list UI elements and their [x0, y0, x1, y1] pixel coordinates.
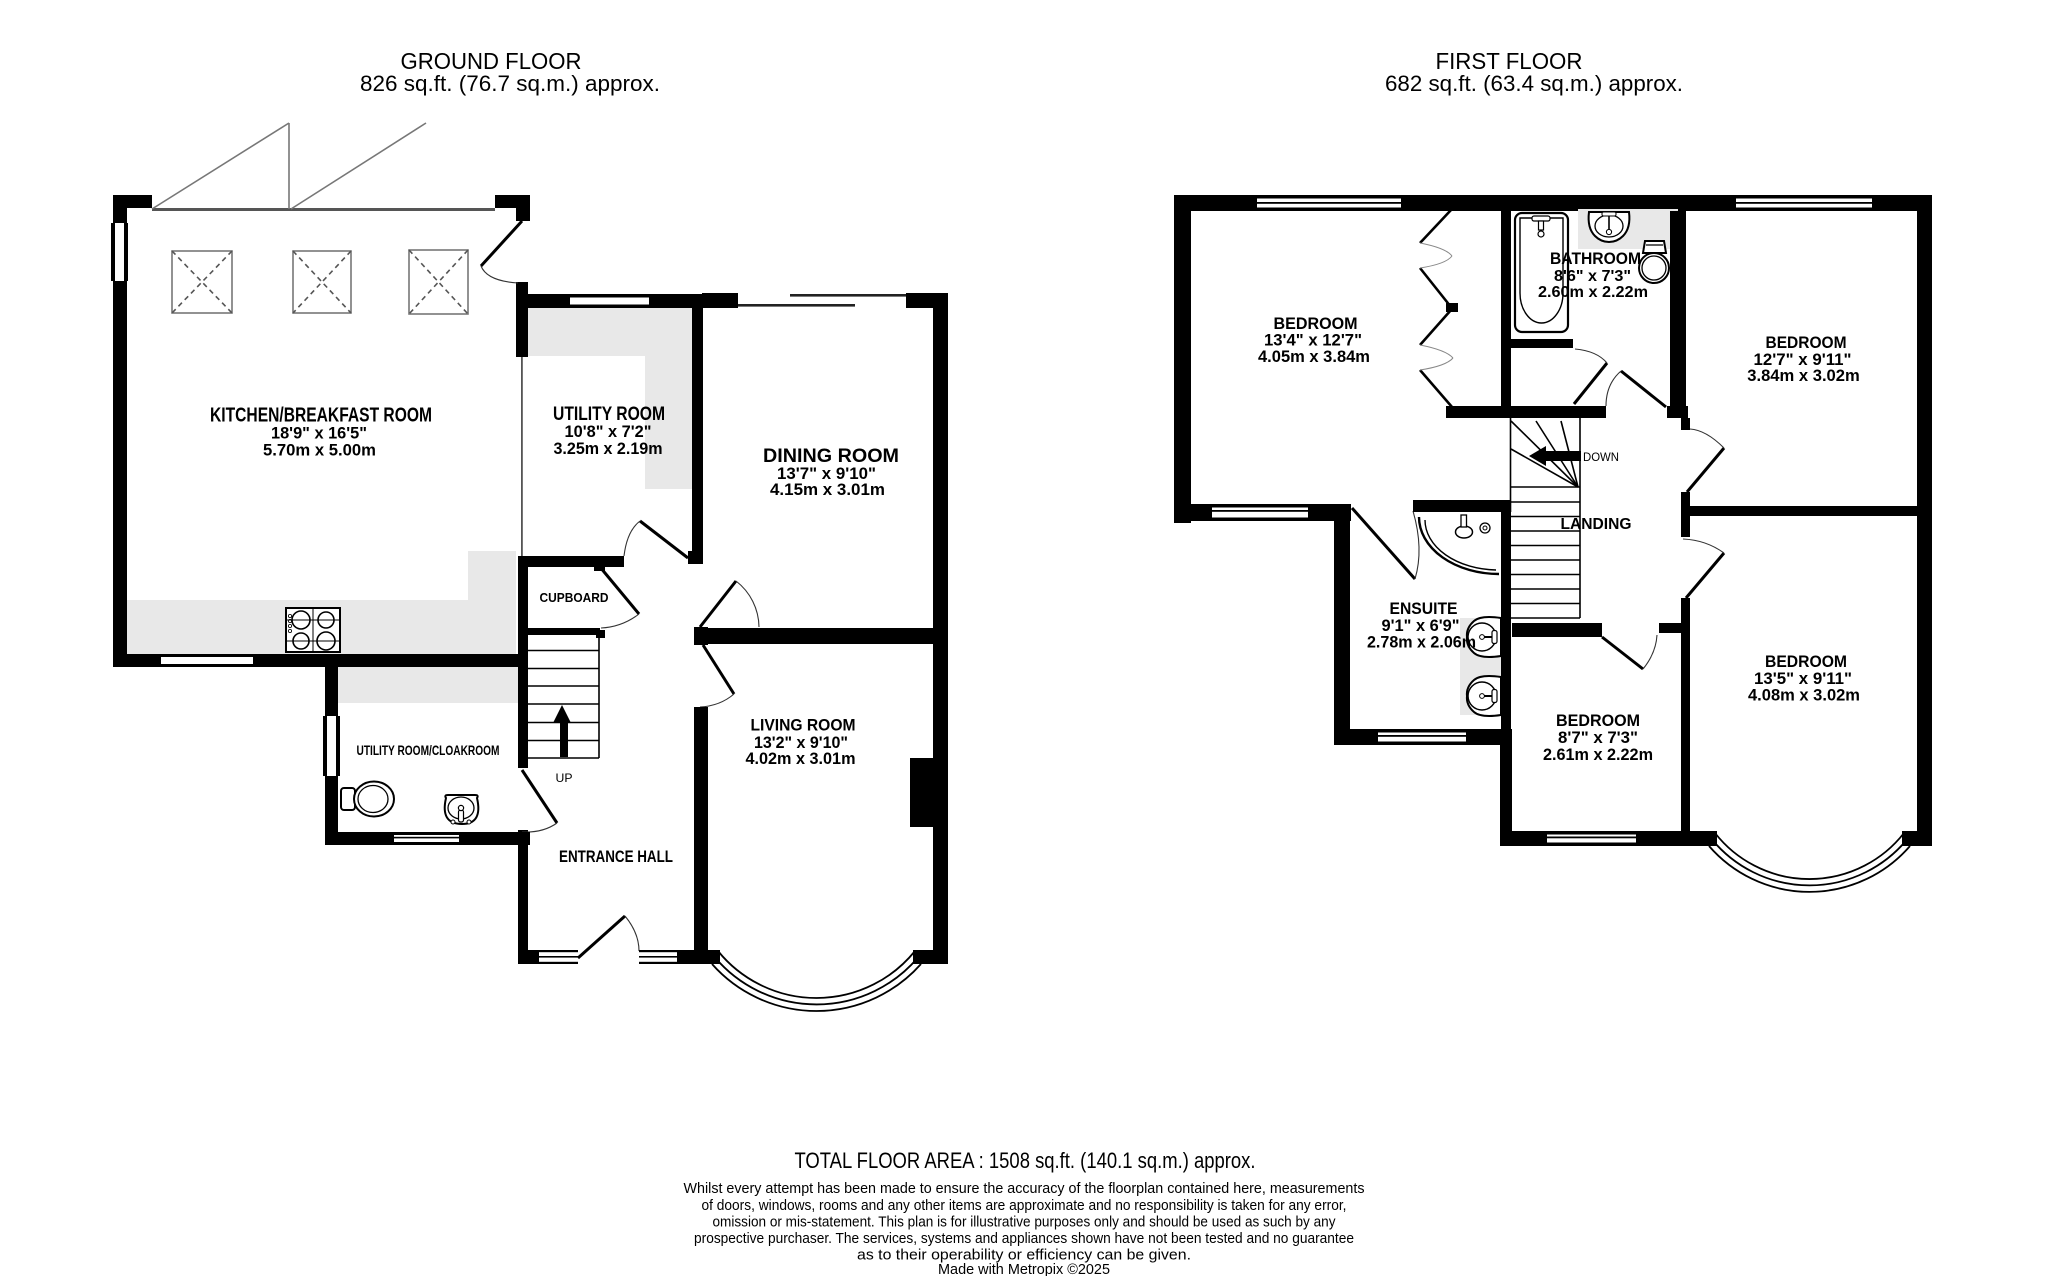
svg-text:BATHROOM: BATHROOM: [1550, 250, 1641, 268]
svg-text:826 sq.ft. (76.7 sq.m.) approx: 826 sq.ft. (76.7 sq.m.) approx.: [360, 71, 660, 96]
svg-text:UTILITY ROOM/CLOAKROOM: UTILITY ROOM/CLOAKROOM: [357, 742, 500, 758]
svg-text:4.08m x 3.02m: 4.08m x 3.02m: [1748, 687, 1860, 705]
svg-text:DINING ROOM: DINING ROOM: [763, 446, 899, 467]
svg-text:UP: UP: [556, 771, 573, 785]
svg-text:KITCHEN/BREAKFAST ROOM: KITCHEN/BREAKFAST ROOM: [210, 405, 432, 427]
svg-text:2.60m x 2.22m: 2.60m x 2.22m: [1538, 284, 1648, 301]
svg-text:BEDROOM: BEDROOM: [1274, 314, 1358, 333]
svg-text:3.25m x 2.19m: 3.25m x 2.19m: [554, 439, 663, 458]
svg-text:2.78m x 2.06m: 2.78m x 2.06m: [1367, 634, 1476, 652]
svg-text:4.05m x 3.84m: 4.05m x 3.84m: [1258, 348, 1370, 366]
svg-text:13'4" x 12'7": 13'4" x 12'7": [1264, 332, 1362, 350]
svg-text:LIVING ROOM: LIVING ROOM: [751, 716, 856, 735]
svg-text:5.70m x 5.00m: 5.70m x 5.00m: [263, 441, 376, 460]
svg-text:CUPBOARD: CUPBOARD: [540, 590, 609, 605]
svg-text:TOTAL FLOOR AREA : 1508 sq.ft.: TOTAL FLOOR AREA : 1508 sq.ft. (140.1 sq…: [795, 1148, 1256, 1173]
svg-text:Whilst every attempt has been: Whilst every attempt has been made to en…: [684, 1181, 1365, 1197]
svg-text:ENTRANCE HALL: ENTRANCE HALL: [559, 847, 673, 866]
svg-text:DOWN: DOWN: [1583, 450, 1619, 464]
svg-text:BEDROOM: BEDROOM: [1765, 652, 1847, 671]
svg-text:2.61m x 2.22m: 2.61m x 2.22m: [1543, 746, 1653, 764]
svg-text:prospective purchaser. The ser: prospective purchaser. The services, sys…: [694, 1231, 1354, 1247]
svg-text:3.84m x 3.02m: 3.84m x 3.02m: [1747, 367, 1860, 385]
svg-text:BEDROOM: BEDROOM: [1556, 711, 1640, 730]
svg-text:ENSUITE: ENSUITE: [1390, 599, 1458, 618]
svg-text:8'7" x 7'3": 8'7" x 7'3": [1558, 729, 1638, 747]
svg-text:Made with Metropix ©2025: Made with Metropix ©2025: [938, 1262, 1110, 1276]
svg-text:9'1" x 6'9": 9'1" x 6'9": [1382, 617, 1460, 635]
svg-text:BEDROOM: BEDROOM: [1766, 333, 1847, 352]
svg-text:4.15m x 3.01m: 4.15m x 3.01m: [770, 481, 885, 499]
svg-text:13'5" x 9'11": 13'5" x 9'11": [1754, 670, 1852, 688]
svg-text:4.02m x 3.01m: 4.02m x 3.01m: [746, 750, 856, 768]
svg-text:8'6" x 7'3": 8'6" x 7'3": [1554, 268, 1631, 285]
svg-text:LANDING: LANDING: [1561, 516, 1632, 533]
svg-text:of doors, windows, rooms and a: of doors, windows, rooms and any other i…: [702, 1198, 1347, 1214]
svg-text:682 sq.ft. (63.4 sq.m.) approx: 682 sq.ft. (63.4 sq.m.) approx.: [1385, 71, 1683, 96]
svg-text:omission or mis-statement. Thi: omission or mis-statement. This plan is …: [713, 1215, 1337, 1231]
